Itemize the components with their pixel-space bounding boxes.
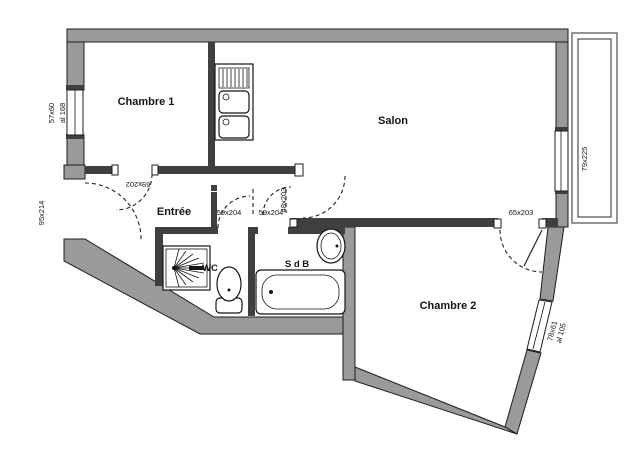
balcony-inner-rail	[578, 39, 611, 217]
dim-chambre1-door: 69x202	[126, 180, 151, 189]
balcony-window	[555, 131, 568, 191]
wall-chambre2-right-upper	[540, 227, 564, 301]
wall-chambre2-bottom	[355, 367, 517, 434]
wall-sanitary-top-1	[155, 227, 218, 234]
room-label-chambre1: Chambre 1	[118, 96, 175, 108]
wall-wc-left	[155, 234, 163, 286]
dim-balcony-window: 79x225	[580, 147, 589, 172]
bathtub	[256, 270, 345, 314]
chambre1-door-arc	[116, 174, 152, 210]
dim-wc-door: 59x204	[217, 208, 242, 217]
chambre2-door-leaf	[524, 230, 542, 266]
balcony	[572, 33, 617, 223]
sink-basin-1	[219, 91, 249, 113]
door-jamb	[539, 219, 546, 228]
door-jamb	[494, 219, 501, 228]
washbasin-drain	[336, 245, 339, 248]
wall-chambre1-bottom-right	[158, 166, 299, 174]
door-jamb	[152, 165, 158, 175]
wall-sanitary-top-2	[248, 227, 258, 234]
toilet-bowl	[217, 267, 241, 301]
toilet-drain	[228, 289, 231, 292]
wall-chambre1-bottom-left	[85, 166, 113, 174]
dim-entrance-door: 95x214	[37, 201, 46, 226]
room-label-wc: WC	[202, 263, 218, 274]
wall-left-upper	[67, 42, 84, 90]
wall-wc-sdb-divider	[248, 234, 255, 316]
wall-tick	[211, 185, 217, 191]
wall-top	[67, 29, 568, 42]
wall-salon-right-upper	[556, 42, 568, 131]
hall-salon-door-arc	[303, 176, 345, 218]
wall-kitchen-divider	[208, 42, 215, 168]
bathtub-drain	[269, 290, 273, 294]
dim-chambre2-window-group: 78x61 al 105	[545, 320, 567, 344]
shower-drain	[172, 266, 176, 270]
washbasin	[317, 229, 345, 263]
door-jamb	[290, 219, 297, 227]
chambre2-door-arc	[500, 230, 542, 272]
wall-chambre2-right-lower	[505, 350, 541, 434]
balcony-outer-rail	[572, 33, 617, 223]
wall-left-step	[64, 165, 85, 179]
toilet	[216, 267, 242, 313]
entrance-door-arc	[85, 183, 141, 239]
window-jamb	[66, 85, 84, 90]
floor-plan-svg: Chambre 1 Salon Entrée WC S d B Chambre …	[0, 0, 640, 461]
kitchen-sink	[215, 64, 253, 140]
room-label-sdb: S d B	[285, 259, 309, 270]
sink-basin-2	[219, 116, 249, 138]
room-label-salon: Salon	[378, 115, 408, 127]
room-label-entree: Entrée	[157, 206, 191, 218]
drainboard-hatch-lines	[223, 69, 247, 87]
dim-hall-salon-door: 48x203	[279, 188, 288, 213]
door-jamb	[295, 164, 303, 176]
door-jamb	[112, 165, 118, 175]
dim-left-window-sill: al 168	[58, 103, 67, 123]
dim-left-window-size: 57x60	[47, 103, 56, 123]
floor-plan-page: Chambre 1 Salon Entrée WC S d B Chambre …	[0, 0, 640, 461]
room-label-chambre2: Chambre 2	[420, 300, 477, 312]
wall-salon-bottom	[290, 218, 498, 227]
dim-chambre2-door: 65x203	[509, 208, 534, 217]
